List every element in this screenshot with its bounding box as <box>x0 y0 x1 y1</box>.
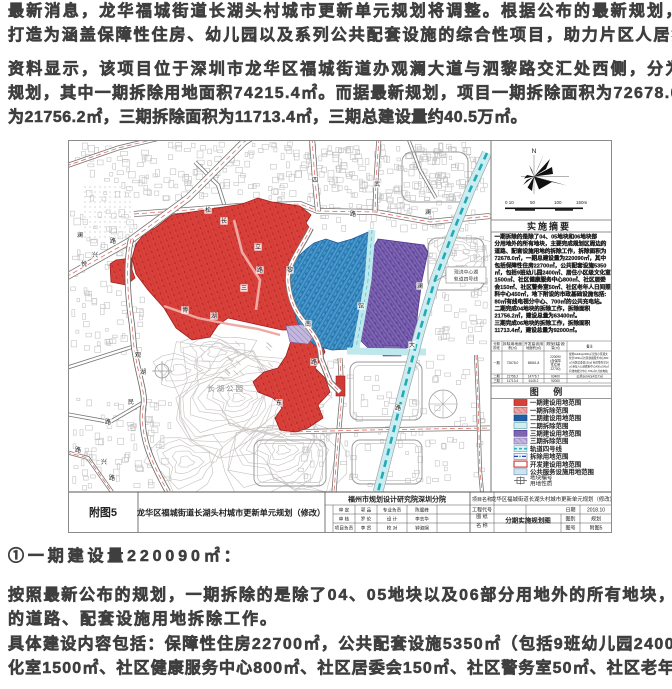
svg-text:22700): 22700) <box>551 367 561 371</box>
svg-text:审 定: 审 定 <box>339 507 350 514</box>
svg-text:路: 路 <box>109 474 115 482</box>
svg-text:有线电视分中心 700㎡公共充电站: 有线电视分中心 700㎡公共充电站 <box>569 369 608 373</box>
svg-text:二期拆除范围: 二期拆除范围 <box>530 421 569 430</box>
svg-text:用地性质: 用地性质 <box>530 480 553 488</box>
svg-text:澜: 澜 <box>417 282 423 290</box>
svg-text:馆: 馆 <box>358 302 364 310</box>
svg-text:兴: 兴 <box>92 251 98 259</box>
svg-text:道路、配套设施用地的拆除工作，拆除面积为: 道路、配套设施用地的拆除工作，拆除面积为 <box>495 247 607 255</box>
svg-text:大: 大 <box>409 341 415 349</box>
svg-text:图 例: 图 例 <box>530 386 569 397</box>
svg-text:一期拆除的是除了04、05地块和06地块部: 一期拆除的是除了04、05地块和06地块部 <box>495 233 598 241</box>
svg-text:三期: 三期 <box>493 378 499 383</box>
svg-text:立: 立 <box>255 243 261 251</box>
svg-text:澜: 澜 <box>425 208 431 216</box>
svg-text:公共service4117㎡: 公共service4117㎡ <box>576 374 603 379</box>
svg-text:63400: 63400 <box>551 375 560 379</box>
svg-text:武: 武 <box>374 180 380 188</box>
svg-text:图别: 图别 <box>565 516 575 523</box>
svg-text:四: 四 <box>312 177 318 184</box>
svg-text:一期: 一期 <box>493 360 499 365</box>
svg-text:附图5: 附图5 <box>590 525 603 532</box>
svg-text:6145.2: 6145.2 <box>529 379 539 383</box>
svg-text:100: 100 <box>554 200 562 205</box>
svg-text:博: 博 <box>182 306 188 314</box>
svg-text:路: 路 <box>105 418 111 426</box>
svg-text:50: 50 <box>530 200 536 205</box>
svg-text:民: 民 <box>128 399 134 406</box>
svg-text:1500㎡、社区健康服务中心800㎡、社区居委: 1500㎡、社区健康服务中心800㎡、社区居委 <box>495 276 607 284</box>
svg-text:福州市规划设计研究院深圳分院: 福州市规划设计研究院深圳分院 <box>347 495 446 504</box>
svg-text:11713.4: 11713.4 <box>507 379 519 383</box>
svg-text:量(㎡): 量(㎡) <box>551 345 560 350</box>
svg-text:11713.4㎡，建设总量为92000㎡。: 11713.4㎡，建设总量为92000㎡。 <box>495 326 581 334</box>
svg-text:一期拆除范围: 一期拆除范围 <box>530 405 569 414</box>
svg-text:72678.0: 72678.0 <box>507 361 519 365</box>
svg-text:三期拆除范围: 三期拆除范围 <box>530 436 569 445</box>
svg-text:名 称: 名 称 <box>476 522 487 529</box>
svg-text:备注: 备注 <box>586 344 593 349</box>
svg-text:罗 伦: 罗 伦 <box>361 516 372 523</box>
svg-text:拆除用地范围: 拆除用地范围 <box>530 452 569 461</box>
svg-text:规划: 规划 <box>591 516 601 523</box>
svg-text:图号: 图号 <box>565 526 575 532</box>
svg-text:--: -- <box>588 379 590 383</box>
svg-text:审 核: 审 核 <box>339 516 350 523</box>
svg-text:150m: 150m <box>576 200 588 205</box>
svg-text:开发建设用地范围: 开发建设用地范围 <box>530 459 582 468</box>
svg-text:图 纸: 图 纸 <box>476 513 487 520</box>
svg-text:分用地外的所有地块，主要完成规划区周边的: 分用地外的所有地块，主要完成规划区周边的 <box>495 240 607 248</box>
svg-text:65561.8: 65561.8 <box>528 361 540 365</box>
svg-text:路: 路 <box>395 404 401 412</box>
svg-text:黎: 黎 <box>287 266 293 274</box>
svg-text:㎡ 社区居委会150㎡ 社区警务室50: ㎡ 社区居委会150㎡ 社区警务室50 <box>569 360 609 364</box>
svg-text:附图5: 附图5 <box>89 505 117 519</box>
svg-text:14776.7: 14776.7 <box>528 375 540 379</box>
svg-text:松: 松 <box>205 206 211 214</box>
svg-text:轨道四号线: 轨道四号线 <box>454 276 478 283</box>
svg-text:化室1500㎡ 社区健康服务中心800: 化室1500㎡ 社区健康服务中心800 <box>569 356 609 360</box>
svg-text:积(㎡): 积(㎡) <box>508 345 517 350</box>
svg-text:路: 路 <box>311 358 317 366</box>
svg-text:2018.10: 2018.10 <box>587 508 605 514</box>
svg-text:长: 长 <box>221 217 227 225</box>
svg-text:郭 品: 郭 品 <box>361 507 372 514</box>
svg-text:设 计: 设 计 <box>387 516 398 523</box>
svg-text:现浇中心湖: 现浇中心湖 <box>454 269 478 276</box>
svg-text:一期建设用地范围: 一期建设用地范围 <box>530 398 582 407</box>
svg-text:21756.2㎡，建设总量为63400㎡。: 21756.2㎡，建设总量为63400㎡。 <box>495 312 581 320</box>
svg-text:地块编号: 地块编号 <box>530 474 553 482</box>
svg-text:N: N <box>532 148 537 155</box>
svg-text:阶段: 阶段 <box>493 345 500 350</box>
svg-text:观: 观 <box>135 352 141 359</box>
svg-text:湖: 湖 <box>140 368 146 376</box>
svg-text:澜: 澜 <box>77 231 83 239</box>
svg-text:钟淑娴: 钟淑娴 <box>415 525 429 532</box>
svg-text:日期: 日期 <box>565 508 575 514</box>
svg-text:二期完成04地块的拆除工作，拆除面积: 二期完成04地块的拆除工作，拆除面积 <box>495 305 591 313</box>
svg-text:南: 南 <box>305 320 311 328</box>
svg-text:长湖公园: 长湖公园 <box>207 383 245 393</box>
svg-text:校 对: 校 对 <box>387 525 398 532</box>
svg-text:三: 三 <box>241 285 247 292</box>
svg-text:陈暖峰: 陈暖峰 <box>415 507 429 514</box>
svg-text:92000: 92000 <box>551 379 560 383</box>
svg-text:二期建设用地范围: 二期建设用地范围 <box>530 413 582 422</box>
svg-text:路: 路 <box>110 237 116 245</box>
svg-text:会150㎡、社区警务室50㎡、社区老年人日间照: 会150㎡、社区警务室50㎡、社区老年人日间照 <box>495 283 612 291</box>
svg-text:三期建设用地范围: 三期建设用地范围 <box>530 429 582 438</box>
svg-text:0 10: 0 10 <box>505 200 514 205</box>
svg-text:项目名称: 项目名称 <box>472 496 492 503</box>
svg-text:规划building2400㎡ 居住小区级文: 规划building2400㎡ 居住小区级文 <box>569 352 608 356</box>
svg-text:项目负责: 项目负责 <box>335 525 354 532</box>
svg-text:分期实施规划图: 分期实施规划图 <box>505 516 551 525</box>
svg-text:兴: 兴 <box>101 458 107 466</box>
svg-text:实施摘要: 实施摘要 <box>527 221 571 232</box>
svg-text:李 贯: 李 贯 <box>361 525 372 532</box>
svg-text:72678.0㎡，一期总建设量为220090㎡，其中: 72678.0㎡，一期总建设量为220090㎡，其中 <box>495 254 607 262</box>
svg-text:路: 路 <box>350 210 356 218</box>
svg-text:东: 东 <box>276 399 282 407</box>
svg-text:21756.2: 21756.2 <box>507 375 519 379</box>
svg-text:地面积(㎡): 地面积(㎡) <box>526 345 541 350</box>
svg-text:工程代号: 工程代号 <box>472 507 492 514</box>
svg-text:三期完成06地块的拆除工作，拆除面积: 三期完成06地块的拆除工作，拆除面积 <box>495 319 591 327</box>
svg-text:料中心450㎡，地下附设的市政基础设施包括:: 料中心450㎡，地下附设的市政基础设施包括: <box>495 290 607 298</box>
svg-text:㎡，包括9班幼儿园2400㎡、居住小区级文化室: ㎡，包括9班幼儿园2400㎡、居住小区级文化室 <box>495 269 612 277</box>
svg-text:路: 路 <box>257 266 263 274</box>
svg-text:悦: 悦 <box>81 260 87 268</box>
svg-text:龙华区福城街道长湖头村城市更新单元规划（修改）: 龙华区福城街道长湖头村城市更新单元规划（修改） <box>136 508 325 518</box>
svg-text:㎡ 老年人日间照料中心450㎡ 80㎡: ㎡ 老年人日间照料中心450㎡ 80㎡ <box>569 365 609 369</box>
svg-text:包括保障性住房22700㎡，公共配套设施5350: 包括保障性住房22700㎡，公共配套设施5350 <box>495 261 607 269</box>
svg-text:路: 路 <box>75 446 81 454</box>
svg-text:李志华: 李志华 <box>415 516 429 523</box>
svg-text:龙华区福城街道长湖头村城市更新单元规划（修改）: 龙华区福城街道长湖头村城市更新单元规划（修改） <box>491 495 612 503</box>
svg-text:轨道四号线: 轨道四号线 <box>530 444 563 453</box>
svg-text:二期: 二期 <box>493 374 499 379</box>
svg-text:湖: 湖 <box>211 312 217 320</box>
svg-text:专业负责: 专业负责 <box>383 507 402 514</box>
svg-text:80㎡有线电视分中心、700㎡的公共充电站。: 80㎡有线电视分中心、700㎡的公共充电站。 <box>495 297 606 305</box>
